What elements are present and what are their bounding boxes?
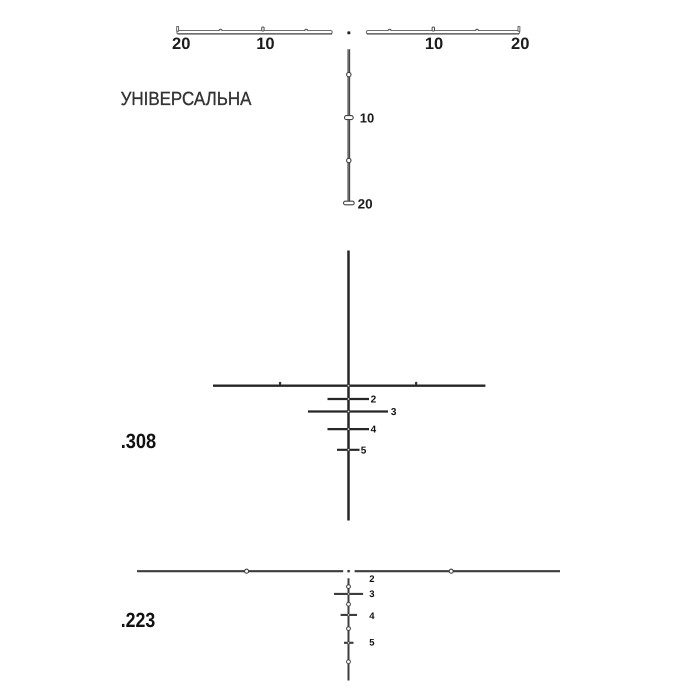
svg-text:5: 5 — [361, 445, 367, 456]
svg-text:20: 20 — [358, 197, 373, 212]
svg-text:5: 5 — [369, 638, 375, 649]
svg-text:.308: .308 — [121, 430, 157, 453]
svg-text:3: 3 — [391, 407, 397, 418]
svg-text:4: 4 — [369, 611, 375, 622]
svg-text:.223: .223 — [121, 609, 156, 632]
svg-text:2: 2 — [369, 574, 374, 585]
svg-text:10: 10 — [425, 35, 443, 53]
svg-text:20: 20 — [511, 35, 529, 53]
svg-text:2: 2 — [371, 394, 377, 405]
svg-text:4: 4 — [371, 425, 377, 436]
svg-text:10: 10 — [360, 110, 374, 125]
svg-text:УНІВЕРСАЛЬНА: УНІВЕРСАЛЬНА — [121, 89, 252, 110]
svg-text:10: 10 — [256, 35, 274, 53]
svg-text:3: 3 — [369, 589, 374, 600]
svg-text:20: 20 — [172, 35, 190, 53]
